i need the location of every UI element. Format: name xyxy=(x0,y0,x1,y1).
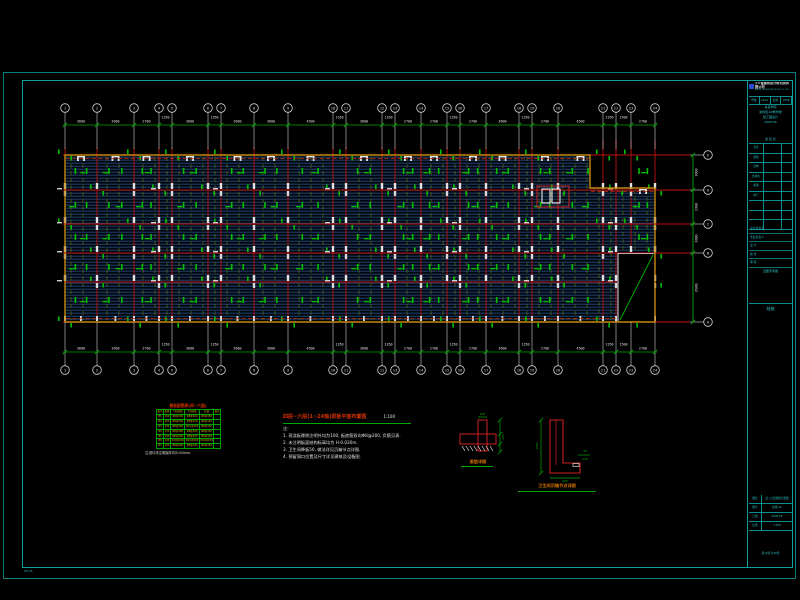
logo-icon xyxy=(749,84,754,89)
titleblock-row: 比例1:100 xyxy=(749,522,792,531)
table-row: B5100Φ8@200Φ8@200Φ8@150 xyxy=(157,434,221,439)
sign-row: 给排水 xyxy=(749,173,792,183)
table-row: B2100Φ8@200Φ8@200Φ8@150 xyxy=(157,419,221,424)
titleblock-divider xyxy=(747,80,748,568)
table-row: B7100Φ8@200Φ8@200Φ8@150 xyxy=(157,444,221,449)
sheet-inner-border xyxy=(22,80,793,568)
certificate-cell: 甲级 xyxy=(749,97,760,104)
sign-row: 结构 xyxy=(749,163,792,173)
plot-stamp: 08.06 xyxy=(24,569,33,573)
note-lines: 1. 现浇板厚除注明外均为100, 板底筋双向Φ8@200, 负筋见表.2. 未… xyxy=(283,432,443,460)
staff-row: 设计总负责 xyxy=(749,225,792,234)
design-institute-subtitle: ARCH. DESIGN INSTITUTE CO.,LTD xyxy=(755,89,792,91)
note-line: 4. 预留洞口位置及尺寸详见建筑及设备图. xyxy=(283,453,443,460)
sign-row: 电气 xyxy=(749,192,792,202)
sign-row xyxy=(749,211,792,221)
certificate-cell: A102 xyxy=(760,97,771,104)
note-line: 3. 卫生间降板50, 做法详见沉箱节点详图. xyxy=(283,446,443,453)
sign-row: 暖通 xyxy=(749,182,792,192)
drawing-title: 四层~六层(1~24轴)梁板平面布置图 xyxy=(283,413,366,420)
project-info: 某某学院新校区1#教学楼施工图设计2008.06 xyxy=(749,105,792,135)
detail2-caption-underline xyxy=(518,491,596,492)
sign-row: 专业 xyxy=(749,144,792,154)
title-block: ××省建筑设计研究院有限公司 ARCH. DESIGN INSTITUTE CO… xyxy=(749,81,792,567)
titleblock-bottom-rows: 图名四~六层梁板平面图图号结施-12日期2008.06比例1:100 xyxy=(749,495,792,531)
staff-row: 设 计 xyxy=(749,242,792,251)
certificate-strip: 甲级A102结施2008 xyxy=(749,96,792,105)
detail1-caption-underline xyxy=(461,466,493,467)
staff-rows: 设计总负责专业负责人设 计校 对审 核 xyxy=(749,225,792,268)
title-underline xyxy=(283,423,411,425)
sign-row: 建筑 xyxy=(749,154,792,164)
slab-schedule: 楼板配筋表(四~六层) 板号板厚X向底筋Y向底筋负筋备注B1100Φ8@200Φ… xyxy=(156,403,222,449)
titleblock-row: 图号结施-12 xyxy=(749,504,792,513)
sign-row xyxy=(749,201,792,211)
certificate-cell: 结施 xyxy=(771,97,782,104)
table-row: B4110Φ8@180Φ8@180Φ8@150 xyxy=(157,429,221,434)
sign-column-header: 会 签 栏 xyxy=(749,136,792,144)
detail2-caption: 卫生间沉箱节点详图 xyxy=(516,483,598,489)
sign-table: 专业建筑结构给排水暖通电气 xyxy=(749,144,792,230)
slab-schedule-table: 板号板厚X向底筋Y向底筋负筋备注B1100Φ8@200Φ8@200Φ8@150B… xyxy=(156,409,221,449)
discipline-label: 结施 xyxy=(749,303,792,314)
drawing-scale: 1:100 xyxy=(383,414,395,419)
titleblock-logo: ××省建筑设计研究院有限公司 ARCH. DESIGN INSTITUTE CO… xyxy=(749,82,792,91)
design-institute-name: ××省建筑设计研究院有限公司 xyxy=(755,82,792,89)
certificate-cell: 2008 xyxy=(781,97,792,104)
titleblock-row: 图名四~六层梁板平面图 xyxy=(749,495,792,504)
staff-row: 专业负责人 xyxy=(749,234,792,243)
stamp-label: 出图专用章 xyxy=(749,267,792,276)
project-line: 2008.06 xyxy=(749,120,792,125)
general-notes: 四层~六层(1~24轴)梁板平面布置图 1:100 注: 1. 现浇板厚除注明外… xyxy=(283,403,443,460)
table-row: B1100Φ8@200Φ8@200Φ8@150 xyxy=(157,414,221,419)
table-row: B3100Φ8@200Φ10@200Φ8@150 xyxy=(157,424,221,429)
page-note: 第12张 共28张 xyxy=(749,551,792,555)
note-line: 1. 现浇板厚除注明外均为100, 板底筋双向Φ8@200, 负筋见表. xyxy=(283,432,443,439)
detail1-caption: 梁垫详图 xyxy=(460,459,496,465)
slab-schedule-note: 注:图中未注明板厚均为100mm. xyxy=(145,450,191,455)
slab-schedule-title: 楼板配筋表(四~六层) xyxy=(156,403,220,408)
table-row: B6120Φ10@200Φ10@200Φ10@150 xyxy=(157,439,221,444)
staff-row: 校 对 xyxy=(749,251,792,260)
titleblock-row: 日期2008.06 xyxy=(749,513,792,522)
drawing-sheet: 1234567891011121314151617181920212223243… xyxy=(0,0,800,600)
note-line: 2. 未注明板面结构标高均为 H-0.030m. xyxy=(283,439,443,446)
